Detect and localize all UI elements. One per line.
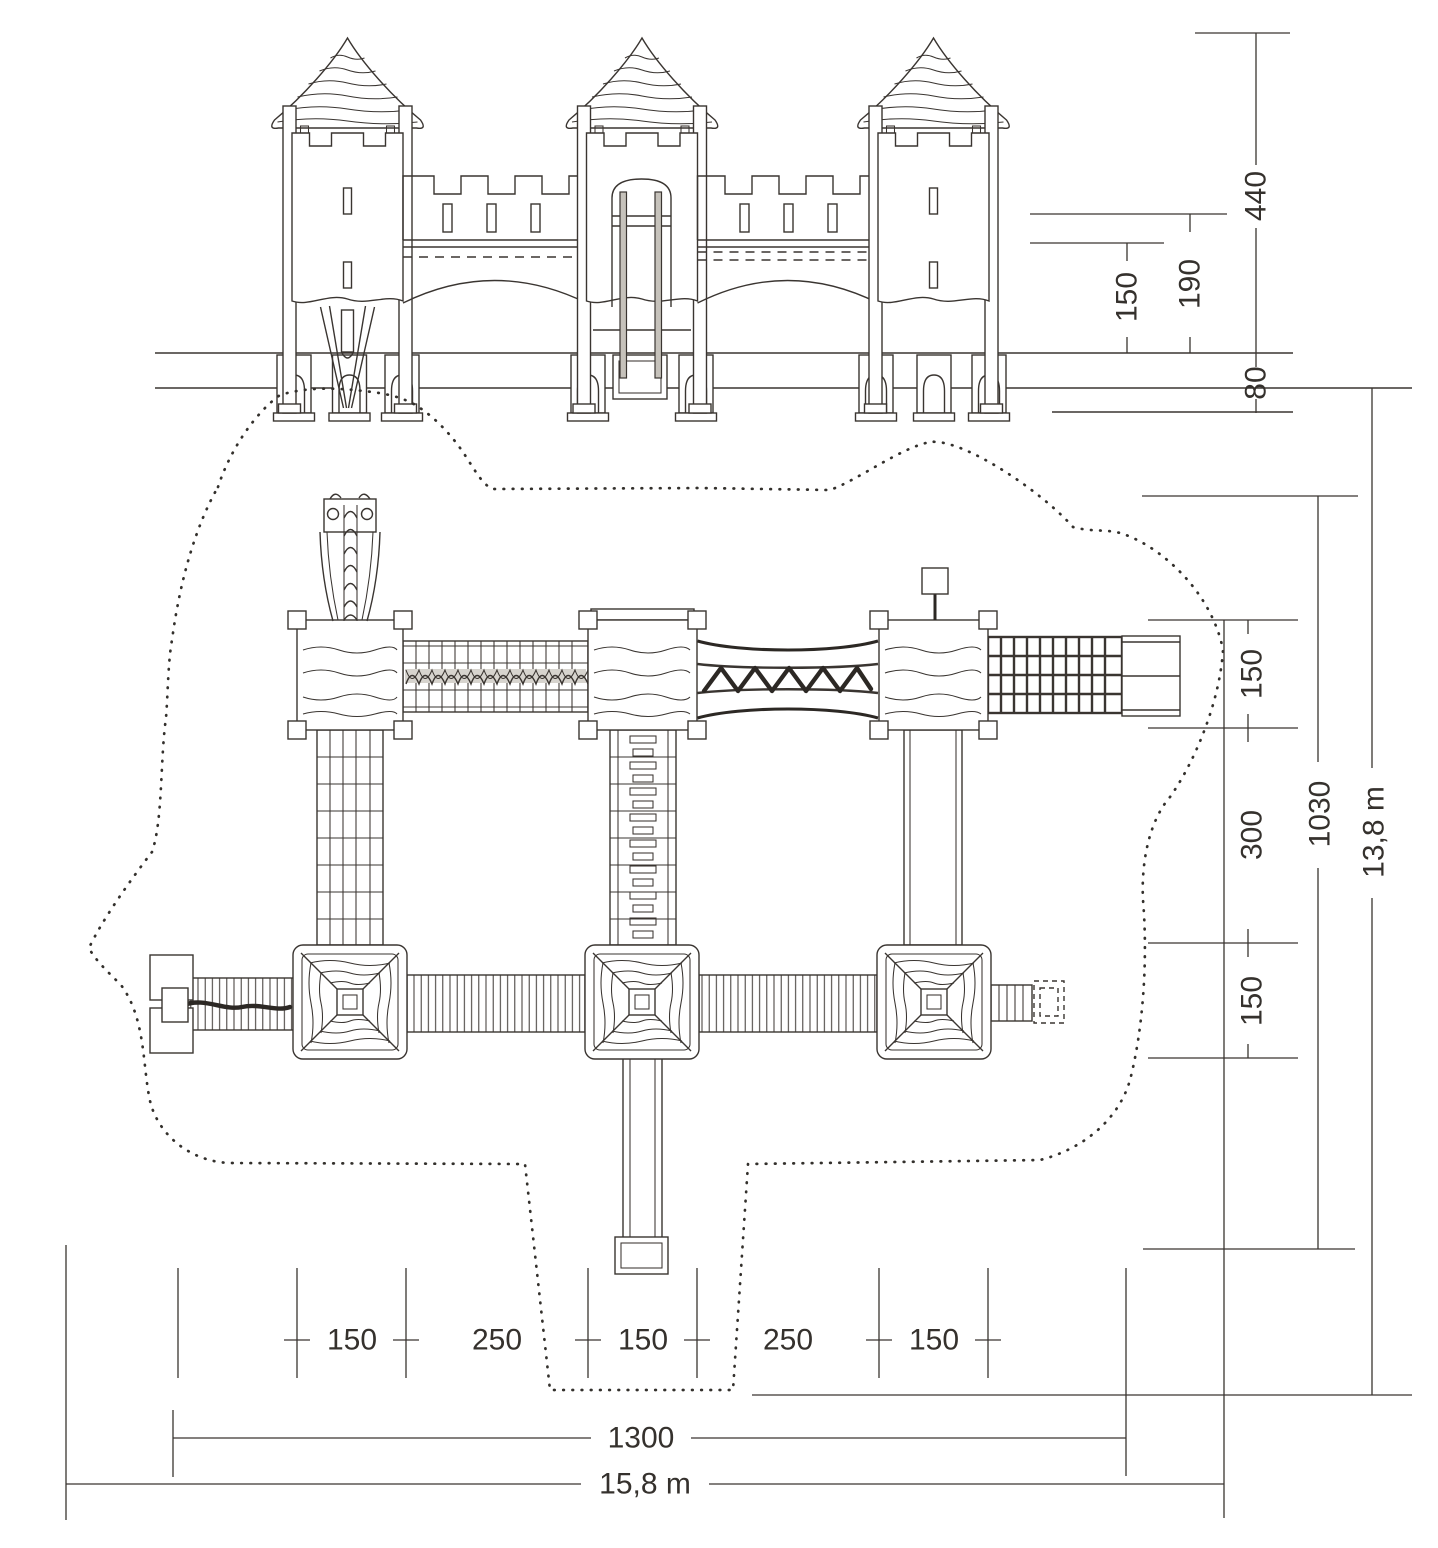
dim-bridge-right-span: 250 [763,1324,813,1357]
dim-elevation-overall-height: 440 [1240,171,1273,221]
elevation-view [155,38,1412,421]
double-slide-plan [1122,636,1180,716]
entry-steps-right [991,981,1064,1023]
slide-rail [620,192,627,378]
platform-middle [579,609,706,739]
dim-tower-middle-width: 150 [618,1324,668,1357]
rope-bridge [698,641,879,718]
elevation-wall-left [403,176,587,303]
dim-plan-middle-span: 300 [1236,810,1269,860]
plan-upper-structures [317,636,1180,945]
elevation-dimensions: 440 190 150 80 [1030,33,1290,413]
net-bridge [403,641,588,712]
pyramid-roof-middle [585,945,699,1059]
dim-plan-bottom-row-depth: 150 [1236,976,1269,1026]
plan-lower-structures [150,945,1064,1274]
climbing-net-right [988,637,1122,713]
elevation-tower-right [856,38,1010,421]
plank-bridge-right [699,975,877,1032]
slide-plan-bottom [615,1059,668,1274]
arch [403,281,587,304]
dim-tower-right-width: 150 [909,1324,959,1357]
ladder-walkway-middle [610,730,676,945]
dim-elevation-deck-height: 150 [1111,272,1144,322]
dim-plan-structure-depth: 1030 [1304,781,1337,848]
arch [698,281,879,304]
plan-view [89,389,1223,1390]
dim-plan-safety-depth: 13,8 m [1358,786,1391,878]
plan-vertical-dimensions: 150 300 150 1030 13,8 m [752,388,1412,1518]
dim-elevation-foundation-depth: 80 [1240,366,1273,399]
dim-bridge-left-span: 250 [472,1324,522,1357]
drawing-page: 440 190 150 80 150 300 150 1030 13,8 m [0,0,1438,1548]
plan-horizontal-dimensions: 150 250 150 250 150 1300 15,8 m [66,1245,1224,1520]
flag [922,568,948,620]
dim-structure-width: 1300 [608,1422,675,1455]
dim-plan-top-row-depth: 150 [1236,649,1269,699]
dim-safety-width: 15,8 m [599,1468,691,1501]
pyramid-roof-left [293,945,407,1059]
elevation-wall-right [698,176,879,303]
technical-drawing-canvas: 440 190 150 80 150 300 150 1030 13,8 m [0,0,1438,1548]
dimension-annotations: 440 190 150 80 150 300 150 1030 13,8 m [66,33,1412,1520]
platform-left [288,611,412,739]
dim-elevation-rail-height: 190 [1174,259,1207,309]
walkway-right-tower [904,730,962,945]
plan-platforms [288,494,997,739]
zigzag-rope [704,668,871,691]
elevation-tower-middle [566,38,717,421]
plank-bridge-left [407,975,585,1032]
elevation-tower-left [272,38,423,421]
net-walkway-left [317,730,383,945]
pole-climber-plan [320,494,380,621]
dim-tower-left-width: 150 [327,1324,377,1357]
balance-walkway-left [150,955,294,1053]
slide-rail [655,192,662,378]
pyramid-roof-right [877,945,991,1059]
platform-right [870,568,997,739]
